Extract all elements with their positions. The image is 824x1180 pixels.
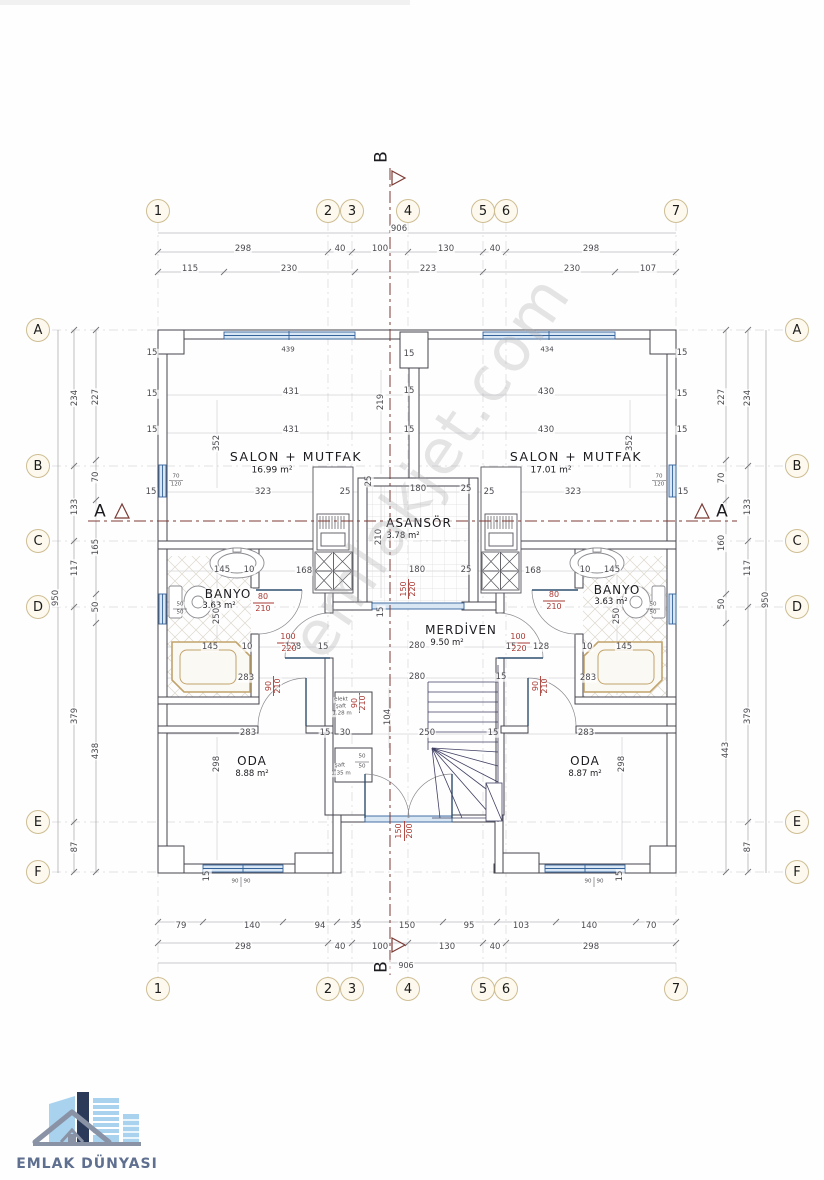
pillar — [295, 853, 337, 873]
toilet-left — [169, 586, 212, 618]
logo-small-building — [123, 1114, 139, 1142]
grid-bubble-3: 3 — [340, 199, 364, 223]
logo-buildings-icon — [27, 1086, 147, 1150]
grid-bubble-3: 3 — [340, 977, 364, 1001]
grid-bubble-7: 7 — [664, 977, 688, 1001]
grid-bubble-C: C — [785, 529, 809, 553]
sink-left — [210, 548, 264, 578]
shower-right — [584, 642, 662, 692]
grid-bubble-2: 2 — [316, 199, 340, 223]
floor-plan-page: 9062984010013040298115230223230107791409… — [0, 0, 824, 1180]
corner-column — [158, 330, 184, 354]
grid-bubble-B: B — [26, 454, 50, 478]
grid-bubble-7: 7 — [664, 199, 688, 223]
stairs — [428, 665, 502, 822]
top-shaft-block — [400, 332, 428, 368]
door-arc-corridor-left — [285, 613, 330, 658]
corner-column — [650, 846, 676, 873]
corner-column — [650, 330, 676, 354]
grid-bubble-4: 4 — [396, 977, 420, 1001]
grid-bubble-E: E — [26, 810, 50, 834]
grid-bubble-A: A — [785, 318, 809, 342]
shower-left — [172, 642, 250, 692]
grid-bubble-6: 6 — [494, 199, 518, 223]
section-triangle-b-bottom — [392, 938, 405, 952]
door-arc-banyo-left — [258, 590, 302, 634]
floor-plan-drawing — [0, 0, 824, 1180]
section-triangle-b-top — [392, 171, 405, 185]
grid-bubble-D: D — [785, 595, 809, 619]
toilet-right — [622, 586, 665, 618]
door-arc-oda-left — [258, 678, 306, 726]
elekt-shaft-box — [335, 692, 372, 734]
section-triangle-a-right — [695, 504, 709, 518]
door-arc-corridor-right — [498, 613, 543, 658]
grid-bubble-D: D — [26, 595, 50, 619]
grid-bubble-2: 2 — [316, 977, 340, 1001]
door-size-fraction-bars — [253, 579, 565, 841]
grid-bubble-F: F — [26, 860, 50, 884]
grid-bubble-1: 1 — [146, 977, 170, 1001]
grid-bubble-C: C — [26, 529, 50, 553]
elevator-door — [372, 603, 464, 609]
scan-artifact — [0, 0, 410, 5]
grid-bubble-1: 1 — [146, 199, 170, 223]
entry-door-sill — [365, 816, 452, 822]
water-shaft-box — [335, 748, 372, 782]
grid-bubble-E: E — [785, 810, 809, 834]
sink-right — [570, 548, 624, 578]
grid-bubble-5: 5 — [471, 977, 495, 1001]
kitchen-counter-left — [313, 467, 353, 593]
grid-bubble-6: 6 — [494, 977, 518, 1001]
elevator-tile-floor — [367, 486, 469, 602]
grid-bubble-5: 5 — [471, 199, 495, 223]
grid-bubble-F: F — [785, 860, 809, 884]
door-arc-oda-right — [528, 678, 576, 726]
grid-bubble-B: B — [785, 454, 809, 478]
logo-text: EMLAK DÜNYASI — [12, 1156, 162, 1172]
doors — [256, 590, 578, 818]
agency-logo: EMLAK DÜNYASI — [12, 1086, 162, 1172]
grid-bubble-A: A — [26, 318, 50, 342]
kitchen-counter-right — [481, 467, 521, 593]
corner-column — [158, 846, 184, 873]
door-arc-entry-right — [408, 774, 452, 818]
grid-bubble-4: 4 — [396, 199, 420, 223]
section-triangle-a-left — [115, 504, 129, 518]
logo-base — [33, 1142, 141, 1146]
door-arc-banyo-right — [532, 590, 576, 634]
